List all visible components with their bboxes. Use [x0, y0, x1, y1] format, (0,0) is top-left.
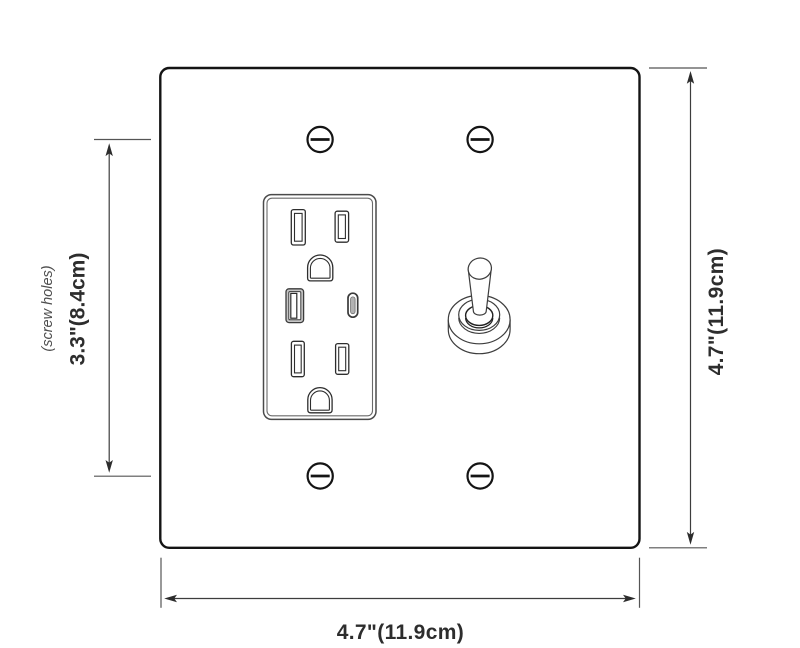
svg-text:4.7"(11.9cm): 4.7"(11.9cm)	[705, 248, 728, 375]
svg-text:(screw holes): (screw holes)	[40, 265, 56, 351]
svg-text:4.7"(11.9cm): 4.7"(11.9cm)	[337, 621, 464, 644]
svg-text:3.3"(8.4cm): 3.3"(8.4cm)	[67, 253, 90, 366]
